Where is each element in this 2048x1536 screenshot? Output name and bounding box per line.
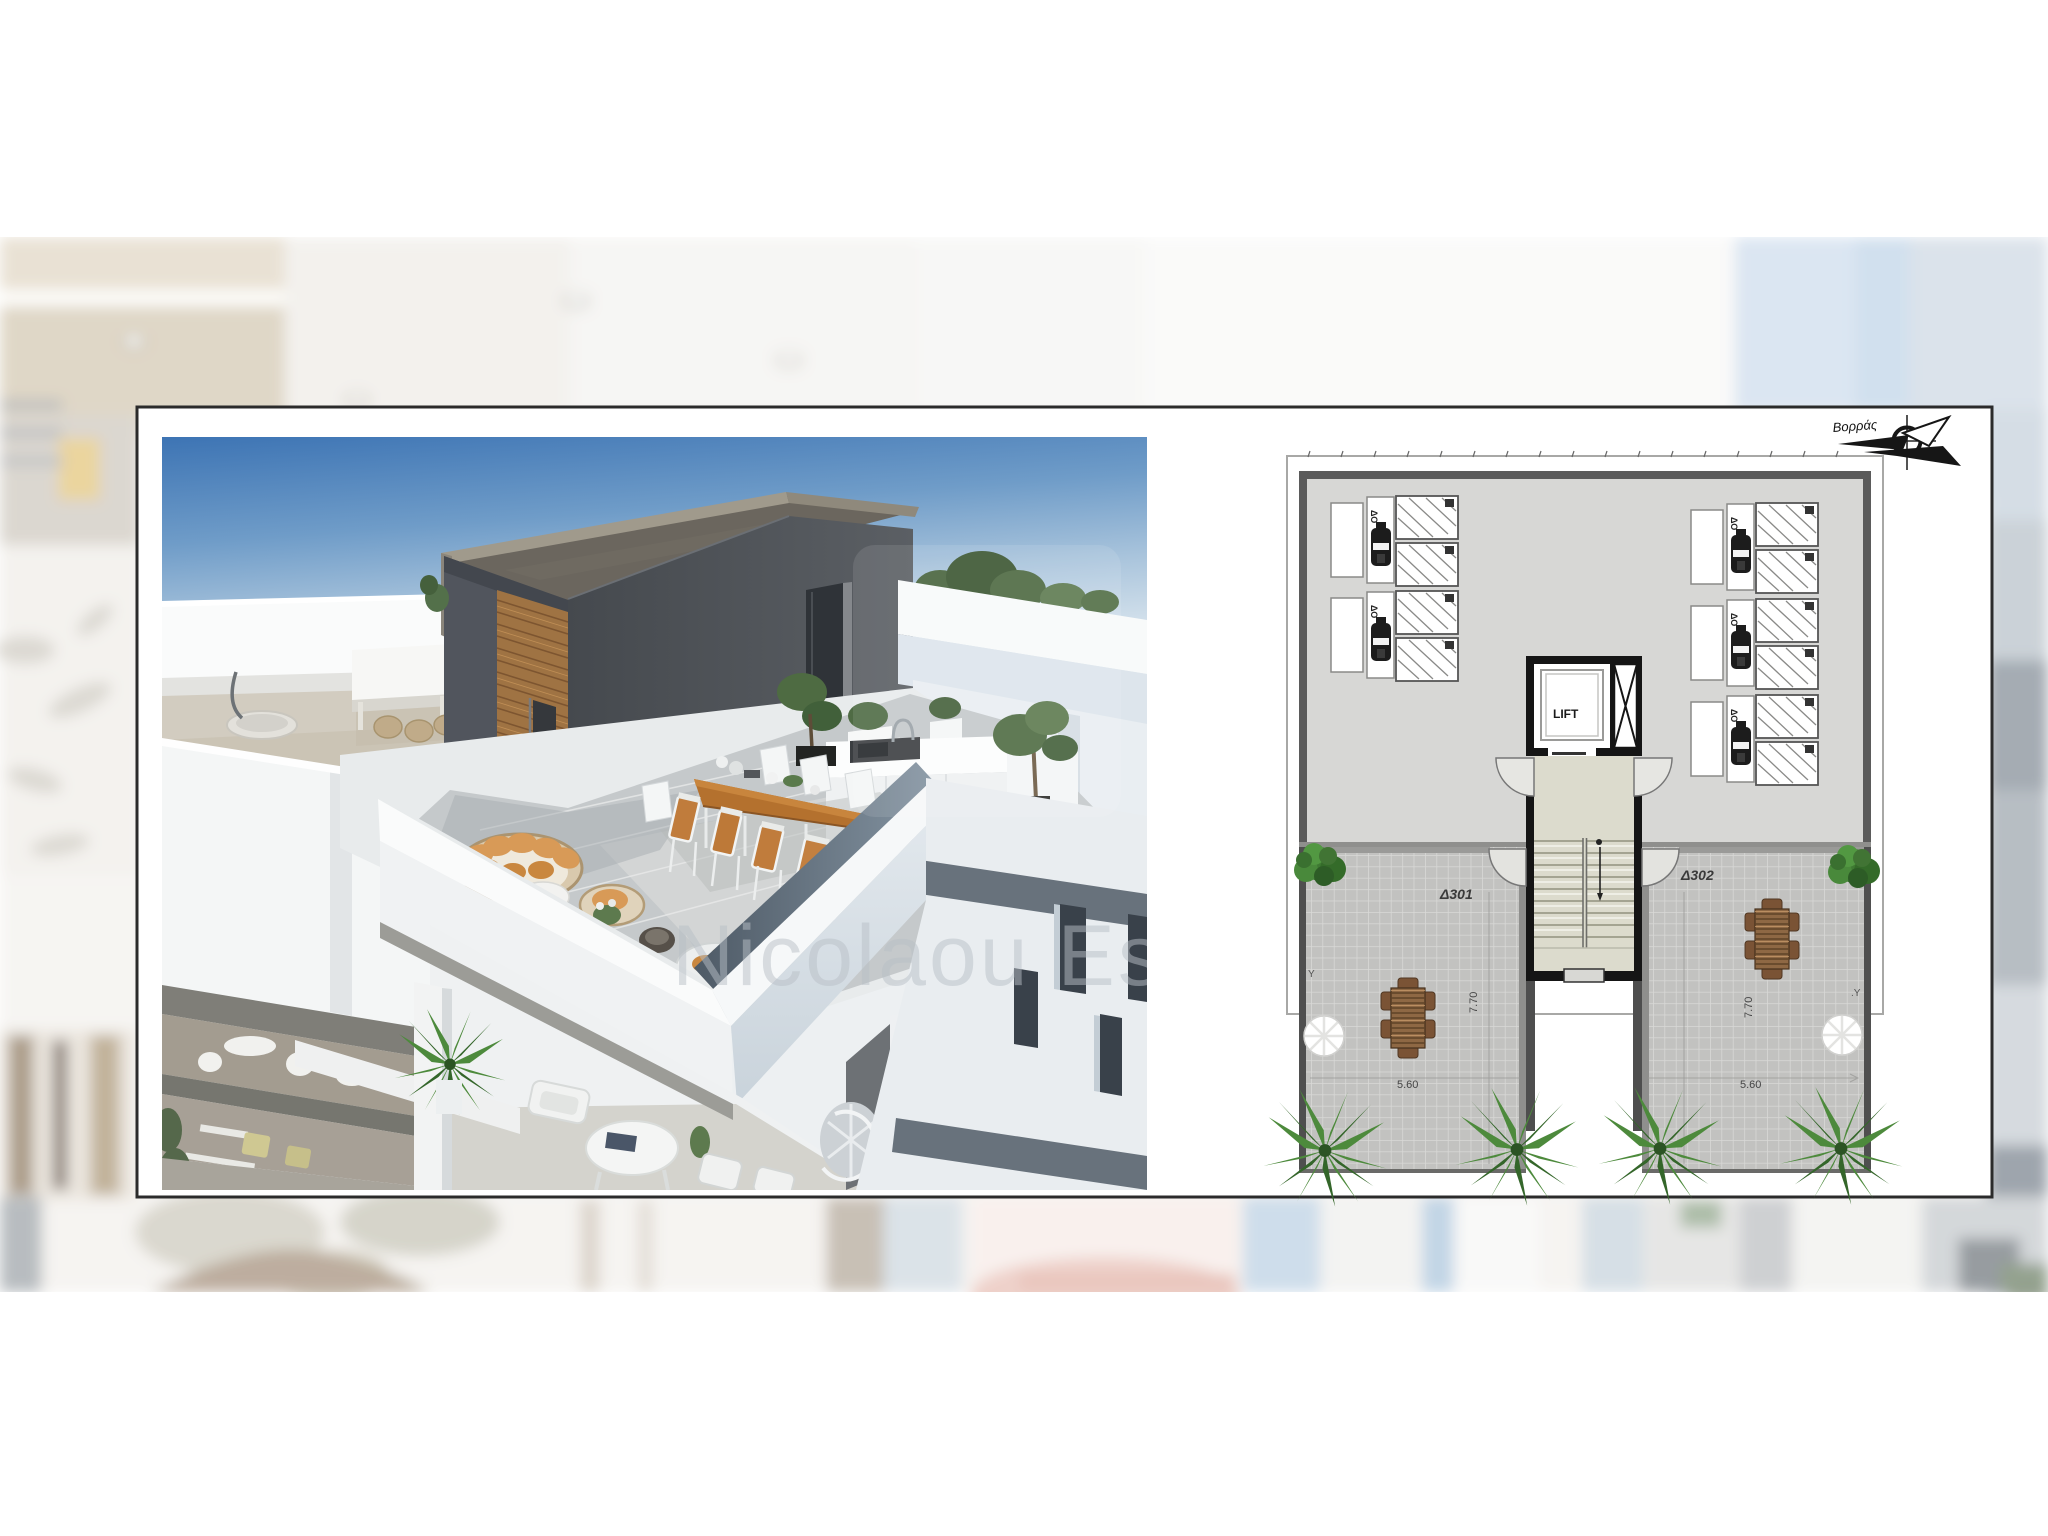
svg-text:5.60: 5.60 bbox=[1740, 1079, 1761, 1091]
svg-text:Nicolaou Es: Nicolaou Es bbox=[672, 908, 1164, 1004]
svg-text:Y: Y bbox=[1308, 969, 1315, 980]
svg-text:7.70: 7.70 bbox=[1468, 992, 1480, 1013]
svg-text:Βορράς: Βορράς bbox=[1832, 417, 1878, 435]
svg-text:LIFT: LIFT bbox=[1553, 707, 1579, 721]
svg-text:7.70: 7.70 bbox=[1743, 997, 1755, 1018]
svg-text:Δ301: Δ301 bbox=[1439, 886, 1473, 902]
svg-text:Δ302: Δ302 bbox=[1680, 867, 1714, 883]
svg-text:5.60: 5.60 bbox=[1397, 1079, 1418, 1091]
svg-text:.Y: .Y bbox=[1851, 988, 1861, 999]
